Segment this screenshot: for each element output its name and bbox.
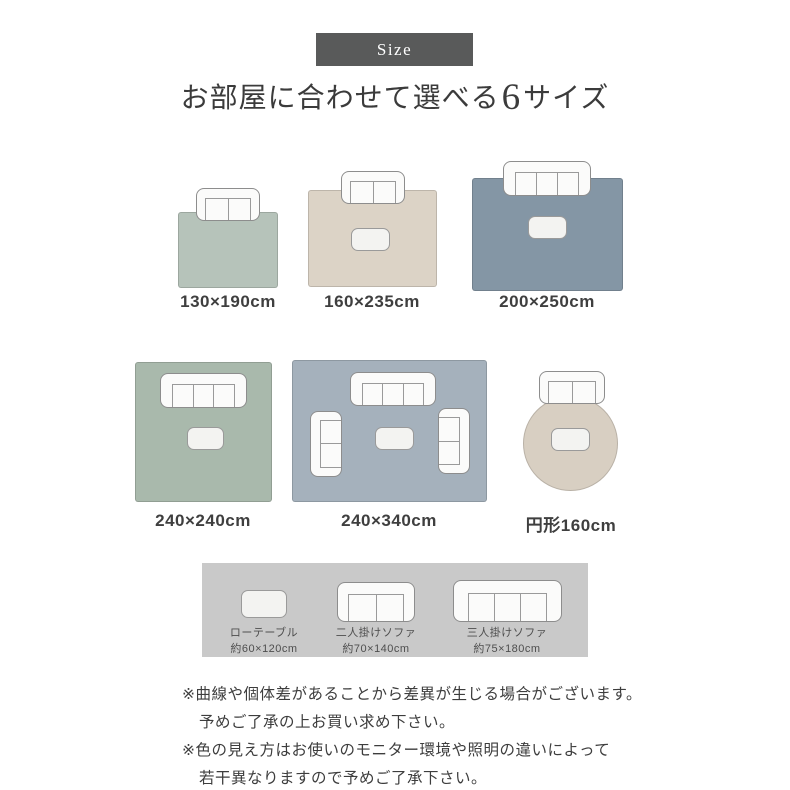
legend-item-name: 二人掛けソファ: [314, 624, 438, 640]
legend-item-size: 約60×120cm: [202, 640, 326, 656]
note-line: ※色の見え方はお使いのモニター環境や照明の違いによって: [182, 737, 642, 765]
page-title: お部屋に合わせて選べる6サイズ: [0, 76, 790, 119]
legend-item-size: 約70×140cm: [314, 640, 438, 656]
legend-item-three-seater-sofa: 三人掛けソファ 約75×180cm: [445, 563, 569, 657]
rug-size-label: 240×240cm: [133, 511, 273, 531]
disclaimer-notes: ※曲線や個体差があることから差異が生じる場合がございます。 予めご了承の上お買い…: [182, 681, 642, 790]
rug-size-label: 240×340cm: [319, 511, 459, 531]
two-seater-sofa-icon: [337, 582, 415, 622]
three-seater-sofa-icon: [453, 580, 562, 622]
rug-size-label: 160×235cm: [302, 292, 442, 312]
note-line: ※曲線や個体差があることから差異が生じる場合がございます。: [182, 681, 642, 709]
three-seater-sofa-icon: [350, 372, 436, 406]
two-seater-sofa-icon: [539, 371, 605, 404]
page-title-count: 6: [502, 77, 522, 118]
legend-item-two-seater-sofa: 二人掛けソファ 約70×140cm: [314, 563, 438, 657]
rug-surface: [178, 212, 278, 288]
two-seater-sofa-icon: [341, 171, 405, 204]
low-table-icon: [551, 428, 590, 451]
size-badge: Size: [316, 33, 473, 66]
page-title-prefix: お部屋に合わせて選べる: [181, 82, 500, 113]
legend-item-name: 三人掛けソファ: [445, 624, 569, 640]
note-line: 予めご了承の上お買い求め下さい。: [182, 709, 642, 737]
note-variance: ※曲線や個体差があることから差異が生じる場合がございます。 予めご了承の上お買い…: [182, 681, 642, 737]
note-line: 若干異なりますので予めご了承下さい。: [182, 765, 642, 790]
two-seater-sofa-icon: [196, 188, 260, 221]
low-table-icon: [187, 427, 224, 450]
low-table-icon: [241, 590, 287, 618]
legend-item-low-table: ローテーブル 約60×120cm: [202, 563, 326, 657]
rug-size-label: 130×190cm: [158, 292, 298, 312]
two-seater-sofa-icon: [310, 411, 342, 477]
low-table-icon: [375, 427, 414, 450]
legend-strip: ローテーブル 約60×120cm 二人掛けソファ 約70×140cm 三人掛けソ…: [202, 563, 588, 657]
note-monitor-color: ※色の見え方はお使いのモニター環境や照明の違いによって 若干異なりますので予めご…: [182, 737, 642, 790]
rug-size-label: 円形160cm: [501, 511, 641, 536]
rug-size-label: 200×250cm: [477, 292, 617, 312]
legend-item-name: ローテーブル: [202, 624, 326, 640]
low-table-icon: [528, 216, 567, 239]
legend-item-size: 約75×180cm: [445, 640, 569, 656]
two-seater-sofa-icon: [438, 408, 470, 474]
page-title-suffix: サイズ: [523, 82, 609, 113]
three-seater-sofa-icon: [160, 373, 247, 408]
size-guide-image: Size お部屋に合わせて選べる6サイズ 130×190cm 160×235cm…: [0, 0, 790, 790]
three-seater-sofa-icon: [503, 161, 591, 196]
low-table-icon: [351, 228, 390, 251]
